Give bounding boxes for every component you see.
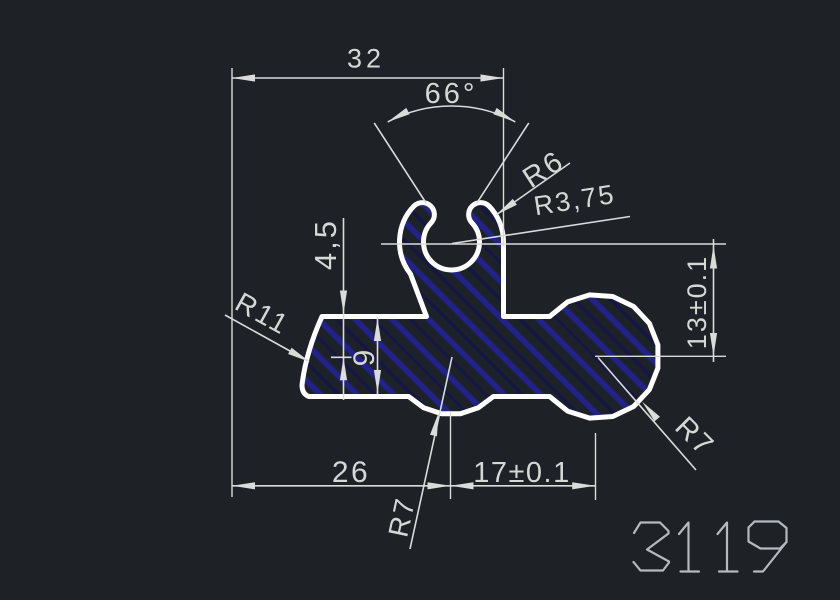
svg-text:26: 26 — [332, 456, 370, 489]
svg-text:9: 9 — [348, 348, 381, 367]
svg-text:4,5: 4,5 — [308, 218, 343, 270]
svg-text:66°: 66° — [425, 78, 478, 110]
svg-text:32: 32 — [347, 44, 385, 74]
svg-text:13±0.1: 13±0.1 — [682, 255, 712, 349]
svg-text:17±0.1: 17±0.1 — [473, 457, 571, 489]
